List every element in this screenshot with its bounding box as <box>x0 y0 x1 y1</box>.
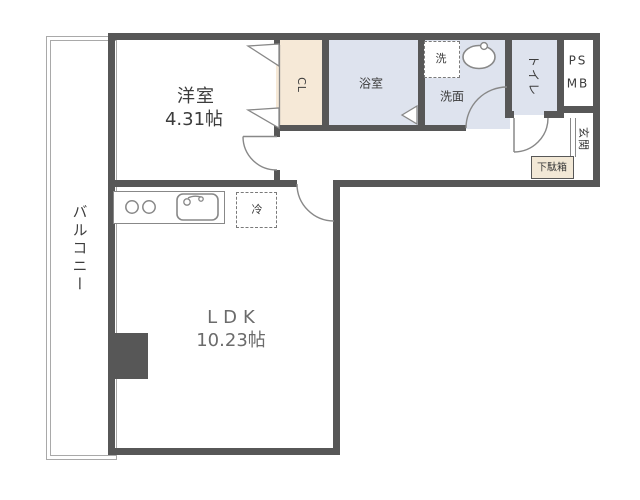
washroom-label: 洗面 <box>440 90 464 103</box>
entrance-step-line <box>570 118 571 157</box>
entrance-label: 玄関 <box>577 127 589 151</box>
balcony-label: バルコニー <box>70 204 91 294</box>
wall-ldk-right <box>333 180 340 455</box>
ldk-door-arc <box>297 184 334 221</box>
wall-ldk-bottom <box>108 448 340 455</box>
wall-western-right-stub-top <box>274 33 280 45</box>
pillar <box>111 333 148 379</box>
wall-wash-toilet <box>505 33 512 118</box>
wall-closet-bottom <box>274 125 329 131</box>
wall-psmb-bottom <box>557 106 600 113</box>
entrance-step-line <box>575 118 576 157</box>
wall-left <box>108 33 115 455</box>
kitchen-counter <box>113 191 225 224</box>
ldk-size: 10.23帖 <box>196 331 266 351</box>
ps-label: PS <box>569 54 588 67</box>
western-room-size: 4.31帖 <box>165 110 223 130</box>
fridge-label: 冷 <box>252 204 263 216</box>
folding-door-icon <box>248 44 279 66</box>
washer-label: 洗 <box>436 53 447 65</box>
bathroom-label: 浴室 <box>359 77 383 90</box>
western-room-label: 洋室 <box>177 87 215 107</box>
wall-toilet-bottom-left <box>505 111 514 118</box>
western-door-arc <box>243 137 277 171</box>
wall-top <box>108 33 600 40</box>
wall-bath-bottom <box>322 125 425 131</box>
wall-hall-bottom-right <box>333 180 600 187</box>
shoe-cabinet-label: 下駄箱 <box>537 163 567 174</box>
wall-closet-bath <box>322 33 329 131</box>
mb-label: MB <box>567 77 590 90</box>
ldk-label: LDK <box>207 308 261 328</box>
closet-label: CL <box>295 77 307 93</box>
wall-western-bottom <box>108 180 271 187</box>
toilet-label: トイレ <box>526 55 539 97</box>
wall-wash-bottom <box>418 125 466 131</box>
floor-plan: 洋室 4.31帖 LDK 10.23帖 バルコニー CL 浴室 洗 洗面 トイレ… <box>0 0 640 500</box>
wall-western-right-stub-bottom <box>274 170 280 187</box>
toilet-door-arc <box>514 118 548 152</box>
